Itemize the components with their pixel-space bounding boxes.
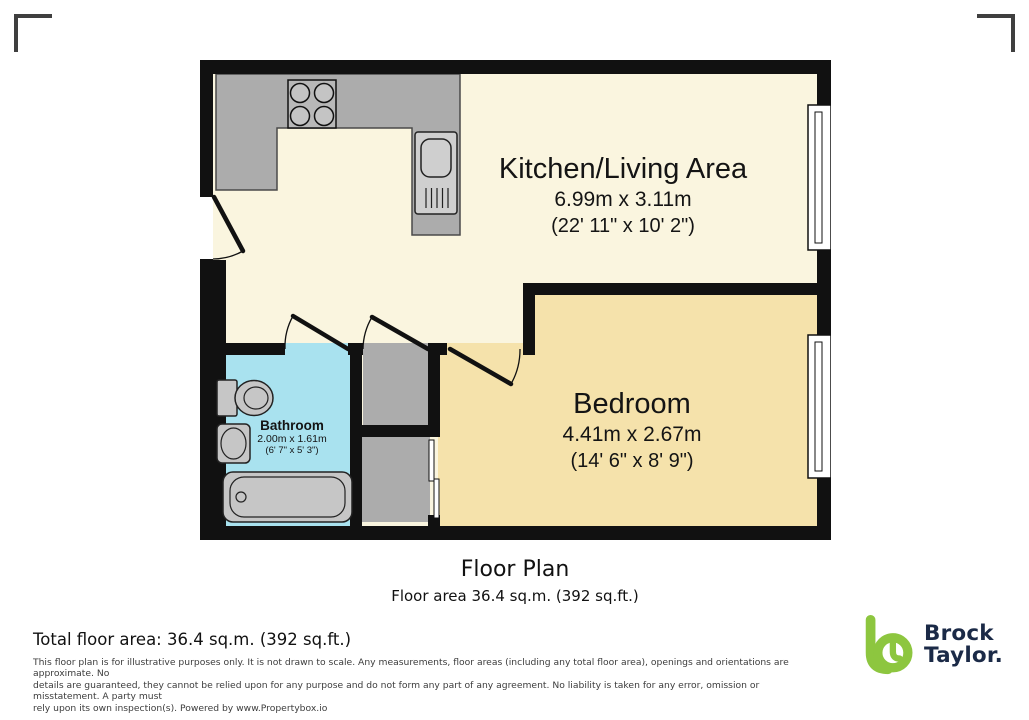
plan-floor-area: Floor area 36.4 sq.m. (392 sq.ft.) (315, 587, 715, 605)
bathtub-icon (223, 472, 352, 522)
sink-unit-icon (415, 132, 457, 214)
disclaimer-line: details are guaranteed, they cannot be r… (33, 680, 823, 703)
total-floor-area: Total floor area: 36.4 sq.m. (392 sq.ft.… (33, 630, 351, 649)
window-icon (808, 335, 831, 478)
window-icon (808, 105, 831, 250)
disclaimer: This floor plan is for illustrative purp… (33, 657, 823, 714)
logo-word-2: Taylor. (924, 645, 1003, 668)
room-dimensions-metric: 6.99m x 3.11m (455, 186, 791, 213)
room-dimensions-metric: 4.41m x 2.67m (464, 421, 800, 448)
room-name: Bathroom (218, 418, 366, 433)
kitchen-living-label: Kitchen/Living Area 6.99m x 3.11m (22' 1… (455, 153, 791, 239)
brock-taylor-logo: Brock Taylor. (858, 612, 1008, 678)
room-dimensions-imperial: (14' 6" x 8' 9") (464, 448, 800, 474)
room-name: Bedroom (464, 388, 800, 421)
disclaimer-line: rely upon its own inspection(s). Powered… (33, 703, 823, 714)
logo-word-1: Brock (924, 623, 1003, 646)
room-dimensions-imperial: (6' 7" x 5' 3") (218, 445, 366, 456)
photo-corner-top-left-icon (14, 14, 52, 52)
room-name: Kitchen/Living Area (455, 153, 791, 186)
bathroom-label: Bathroom 2.00m x 1.61m (6' 7" x 5' 3") (218, 418, 366, 456)
toilet-icon (217, 380, 273, 416)
stove-icon (288, 80, 336, 128)
brock-taylor-logo-mark-icon (858, 614, 920, 676)
room-dimensions-imperial: (22' 11" x 10' 2") (455, 213, 791, 239)
disclaimer-line: This floor plan is for illustrative purp… (33, 657, 823, 680)
room-dimensions-metric: 2.00m x 1.61m (218, 433, 366, 445)
plan-title: Floor Plan (315, 557, 715, 582)
photo-corner-top-right-icon (977, 14, 1015, 52)
bedroom-label: Bedroom 4.41m x 2.67m (14' 6" x 8' 9") (464, 388, 800, 474)
